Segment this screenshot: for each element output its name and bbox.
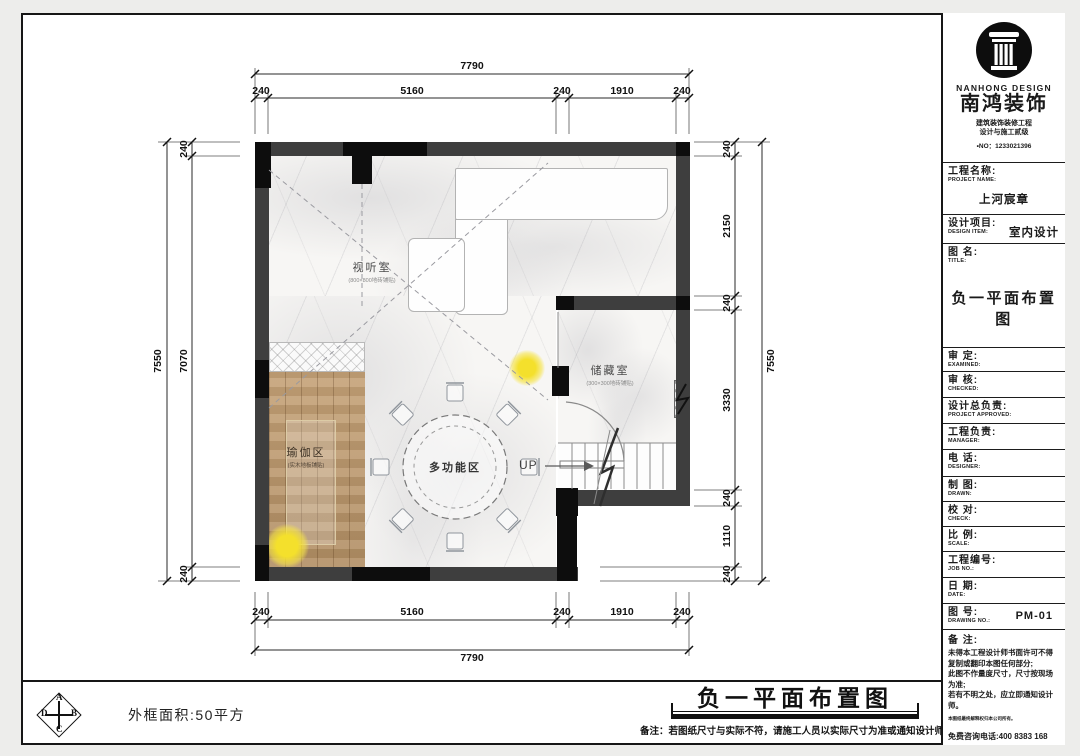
room-name: 视听室 xyxy=(330,259,414,275)
field-drawing-no: 图 号: DRAWING NO.: PM-01 xyxy=(943,604,1065,630)
dim-label: 240 xyxy=(178,552,190,596)
dim-label: 7550 xyxy=(765,339,777,383)
stamp-letter-a: A xyxy=(56,692,63,702)
field-sublabel: DRAWN: xyxy=(948,491,1060,498)
field-label: 备 注: xyxy=(948,635,1060,646)
field-date: 日 期: DATE: xyxy=(943,578,1065,604)
room-label-multi: 多功能区 xyxy=(415,459,495,475)
title-underline-tick-right xyxy=(917,703,919,719)
dim-label: 240 xyxy=(662,606,702,618)
dim-label: 240 xyxy=(721,127,733,171)
field-label: 审 定: xyxy=(948,351,1060,362)
field-examined: 审 定: EXAMINED: xyxy=(943,348,1065,372)
dim-label: 3330 xyxy=(721,378,733,422)
title-underline-tick-left xyxy=(671,703,673,719)
field-sublabel: PROJECT NAME: xyxy=(948,177,1060,184)
dim-label: 7070 xyxy=(178,339,190,383)
field-sublabel: CHECK: xyxy=(948,516,1060,523)
field-value: PM-01 xyxy=(1016,610,1053,622)
dim-label: 240 xyxy=(241,85,281,97)
field-phone: 电 话: DESIGNER: xyxy=(943,450,1065,477)
field-label: 工程名称: xyxy=(948,166,1060,177)
drawing-sheet: 视听室 (800×800地砖铺贴) 瑜伽区 (实木地板铺贴) 多功能区 储藏室 … xyxy=(0,0,1080,756)
field-sublabel: MANAGER: xyxy=(948,438,1060,445)
field-project-approved: 设计总负责: PROJECT APPROVED: xyxy=(943,398,1065,424)
note-line: 未得本工程设计师书面许可不得 xyxy=(948,648,1060,659)
dim-label: 7550 xyxy=(152,339,164,383)
field-sublabel: DESIGNER: xyxy=(948,464,1060,471)
brand-name-en: NANHONG DESIGN xyxy=(948,83,1060,93)
field-scale: 比 例: SCALE: xyxy=(943,527,1065,552)
stamp-letter-c: C xyxy=(56,724,63,734)
room-name: 瑜伽区 xyxy=(270,444,342,460)
dim-label: 2150 xyxy=(721,204,733,248)
room-finish: (实木地板铺贴) xyxy=(270,461,342,469)
note-line: 此图不作量度尺寸，尺寸按现场 xyxy=(948,669,1060,680)
field-manager: 工程负责: MANAGER: xyxy=(943,424,1065,450)
construction-note: 备注：若图纸尺寸与实际不符，请施工人员以实际尺寸为准或通知设计师,否则承担相应责… xyxy=(640,723,942,737)
field-sublabel: EXAMINED: xyxy=(948,362,1060,369)
field-job-no: 工程编号: JOB NO.: xyxy=(943,552,1065,578)
stamp-letter-d: D xyxy=(41,708,48,718)
room-label-av: 视听室 (800×800地砖铺贴) xyxy=(330,259,414,284)
field-label: 设计总负责: xyxy=(948,401,1060,412)
titleblock: NANHONG DESIGN 南鸿装饰 建筑装饰装修工程 设计与施工贰级 •NO… xyxy=(943,13,1065,745)
brand-reg-no: •NO：1233021396 xyxy=(948,140,1060,150)
field-checked: 审 核: CHECKED: xyxy=(943,372,1065,398)
room-name: 储藏室 xyxy=(568,362,652,378)
brand-name-cn: 南鸿装饰 xyxy=(948,93,1060,116)
stairs-up-label: UP xyxy=(519,458,538,472)
dim-label: 240 xyxy=(662,85,702,97)
dim-label: 7790 xyxy=(452,652,492,664)
field-label: 制 图: xyxy=(948,480,1060,491)
stamp-letter-b: B xyxy=(71,708,77,718)
outer-frame-area-label: 外框面积:50平方 xyxy=(128,705,245,725)
field-value: 上河宸章 xyxy=(948,191,1060,207)
dim-label: 240 xyxy=(721,552,733,596)
note-line: 复制或翻印本图任何部分; xyxy=(948,659,1060,670)
dim-label: 240 xyxy=(542,606,582,618)
dim-label: 240 xyxy=(542,85,582,97)
projection-dash-2 xyxy=(269,170,548,400)
field-label: 比 例: xyxy=(948,530,1060,541)
dimension-lines xyxy=(158,68,770,656)
field-design-item: 设计项目: DESIGN ITEM: 室内设计 xyxy=(943,215,1065,244)
drawing-title-bottom: 负一平面布置图 xyxy=(650,679,940,713)
stamp-logo: A B C D xyxy=(36,692,82,738)
field-sublabel: TITLE: xyxy=(948,258,1060,265)
brand-line-1: 建筑装饰装修工程 xyxy=(948,119,1060,128)
title-underline-thick xyxy=(672,714,918,719)
note-fine-print: 本图纸最终解释权归本公司所有。 xyxy=(948,714,1060,725)
field-label: 工程负责: xyxy=(948,427,1060,438)
note-line: 若有不明之处，应立即通知设计 xyxy=(948,690,1060,701)
room-finish: (800×800地砖铺贴) xyxy=(330,276,414,284)
field-proofread: 校 对: CHECK: xyxy=(943,502,1065,527)
room-label-yoga: 瑜伽区 (实木地板铺贴) xyxy=(270,444,342,469)
field-sublabel: CHECKED: xyxy=(948,386,1060,393)
dim-label: 240 xyxy=(721,281,733,325)
dim-label: 7790 xyxy=(452,60,492,72)
field-sublabel: PROJECT APPROVED: xyxy=(948,412,1060,419)
dim-label: 1910 xyxy=(602,606,642,618)
dim-label: 1910 xyxy=(602,85,642,97)
window-bolt xyxy=(677,384,688,414)
door-swing-arc xyxy=(566,402,624,461)
field-value: 室内设计 xyxy=(1009,224,1059,240)
stamp-cross-h xyxy=(45,714,73,716)
note-line: 为准; xyxy=(948,680,1060,691)
brand-line-2: 设计与施工贰级 xyxy=(948,128,1060,137)
field-sublabel: SCALE: xyxy=(948,541,1060,548)
field-label: 日 期: xyxy=(948,581,1060,592)
note-hotline: 免费咨询电话:400 8383 168 xyxy=(948,732,1060,743)
dim-label: 5160 xyxy=(392,606,432,618)
field-label: 电 话: xyxy=(948,453,1060,464)
titleblock-logo-cell: NANHONG DESIGN 南鸿装饰 建筑装饰装修工程 设计与施工贰级 •NO… xyxy=(943,13,1065,163)
field-label: 工程编号: xyxy=(948,555,1060,566)
field-label: 审 核: xyxy=(948,375,1060,386)
company-logo-icon xyxy=(975,21,1033,79)
dim-label: 5160 xyxy=(392,85,432,97)
field-drawing-title: 图 名: TITLE: 负一平面布置图 xyxy=(943,244,1065,348)
field-sublabel: JOB NO.: xyxy=(948,566,1060,573)
room-label-storage: 储藏室 (300×300地砖铺贴) xyxy=(568,362,652,387)
note-line: 师。 xyxy=(948,701,1060,712)
dim-label: 240 xyxy=(178,127,190,171)
field-label: 校 对: xyxy=(948,505,1060,516)
field-notes: 备 注: 未得本工程设计师书面许可不得 复制或翻印本图任何部分; 此图不作量度尺… xyxy=(943,630,1065,745)
room-finish: (300×300地砖铺贴) xyxy=(568,379,652,387)
field-label: 图 名: xyxy=(948,247,1060,258)
field-project-name: 工程名称: PROJECT NAME: 上河宸章 xyxy=(943,163,1065,215)
field-sublabel: DATE: xyxy=(948,592,1060,599)
field-value: 负一平面布置图 xyxy=(948,287,1060,329)
field-drawn: 制 图: DRAWN: xyxy=(943,477,1065,502)
dim-label: 240 xyxy=(241,606,281,618)
title-underline-thin xyxy=(672,711,918,712)
